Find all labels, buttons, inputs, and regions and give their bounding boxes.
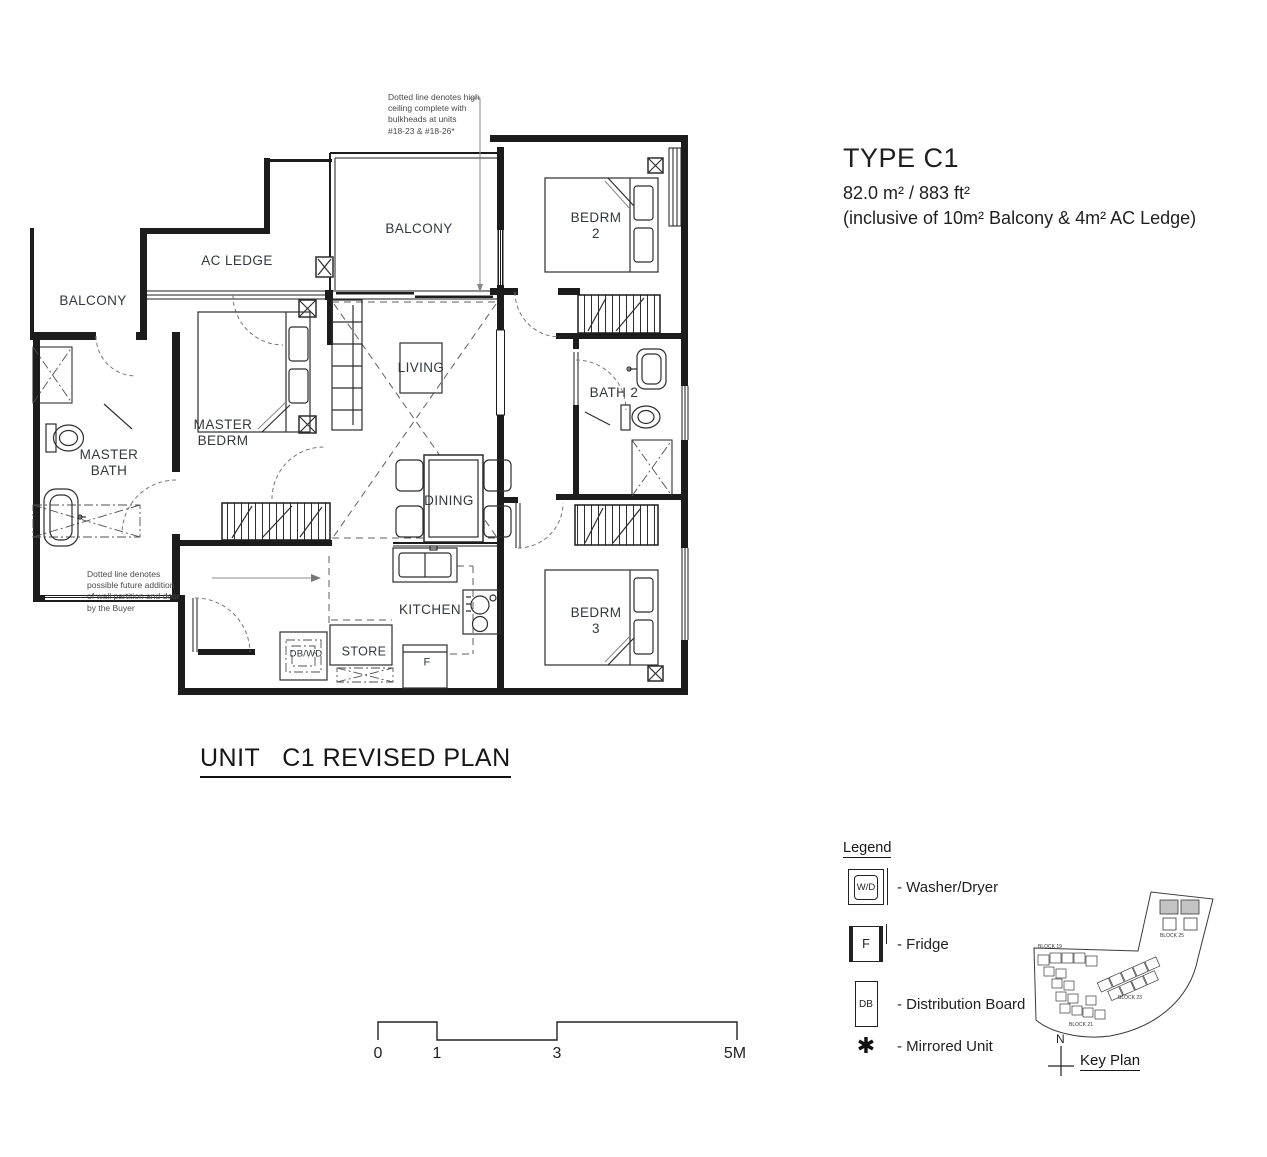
room-label-ac-ledge: AC LEDGE xyxy=(201,253,272,269)
scale-tick-3: 3 xyxy=(553,1045,562,1063)
scale-tick-5m: 5M xyxy=(724,1045,746,1063)
keyplan-block-23: BLOCK 23 xyxy=(1118,995,1142,1001)
keyplan-block-21: BLOCK 21 xyxy=(1069,1022,1093,1028)
room-label-fridge: F xyxy=(424,656,431,669)
annotation-high-ceiling: Dotted line denotes high ceiling complet… xyxy=(388,92,488,137)
kitchen-fixtures xyxy=(280,543,500,688)
washer-dryer-icon: W/D xyxy=(848,869,884,905)
legend-item-washer-dryer: W/D - Washer/Dryer xyxy=(843,869,998,905)
room-label-bedrm2: BEDRM 2 xyxy=(571,210,622,242)
future-partition-dashed-lines xyxy=(329,556,392,625)
room-label-master-bedrm: MASTER BEDRM xyxy=(194,417,253,449)
legend-label: - Washer/Dryer xyxy=(897,879,998,896)
key-plan-drawing xyxy=(1034,892,1213,1076)
plan-title: UNIT C1 REVISED PLAN xyxy=(200,744,511,778)
fridge-icon: F xyxy=(849,926,883,962)
scale-tick-1: 1 xyxy=(433,1045,442,1063)
room-label-balcony-left: BALCONY xyxy=(59,293,126,309)
room-label-kitchen: KITCHEN xyxy=(399,602,461,618)
north-compass xyxy=(1048,1046,1074,1076)
type-title: TYPE C1 xyxy=(843,143,1196,174)
mirrored-unit-icon: ✱ xyxy=(857,1035,875,1057)
legend-label: - Fridge xyxy=(897,936,949,953)
room-label-db-wd: DB/WD xyxy=(290,648,323,659)
distribution-board-icon: DB xyxy=(855,981,878,1027)
type-area: 82.0 m² / 883 ft² xyxy=(843,183,1196,204)
room-label-bath2: BATH 2 xyxy=(590,385,639,401)
room-label-dining: DINING xyxy=(424,493,474,509)
legend-label: - Mirrored Unit xyxy=(897,1038,993,1055)
type-header: TYPE C1 82.0 m² / 883 ft² (inclusive of … xyxy=(843,143,1196,229)
legend-item-fridge: F - Fridge xyxy=(843,926,949,962)
sofa xyxy=(332,300,362,430)
scale-bar xyxy=(378,1022,737,1040)
room-label-master-bath: MASTER BATH xyxy=(80,447,139,479)
room-label-store: STORE xyxy=(342,645,387,660)
room-label-living: LIVING xyxy=(398,360,445,376)
annotation-future-partition: Dotted line denotes possible future addi… xyxy=(87,569,217,614)
type-inclusive-note: (inclusive of 10m² Balcony & 4m² AC Ledg… xyxy=(843,208,1196,229)
north-label: N xyxy=(1056,1032,1065,1046)
legend-title: Legend xyxy=(843,840,891,858)
keyplan-block-19: BLOCK 19 xyxy=(1038,944,1062,950)
keyplan-block-25: BLOCK 25 xyxy=(1160,933,1184,939)
legend-label: - Distribution Board xyxy=(897,996,1025,1013)
floor-plan-sheet: TYPE C1 82.0 m² / 883 ft² (inclusive of … xyxy=(0,0,1267,1157)
legend-item-mirrored-unit: ✱ - Mirrored Unit xyxy=(843,1035,993,1057)
room-label-balcony-center: BALCONY xyxy=(385,221,452,237)
master-bed xyxy=(198,312,310,432)
room-label-bedrm3: BEDRM 3 xyxy=(571,605,622,637)
scale-tick-0: 0 xyxy=(374,1045,383,1063)
legend-item-distribution-board: DB - Distribution Board xyxy=(843,981,1025,1027)
key-plan-title: Key Plan xyxy=(1080,1052,1140,1071)
